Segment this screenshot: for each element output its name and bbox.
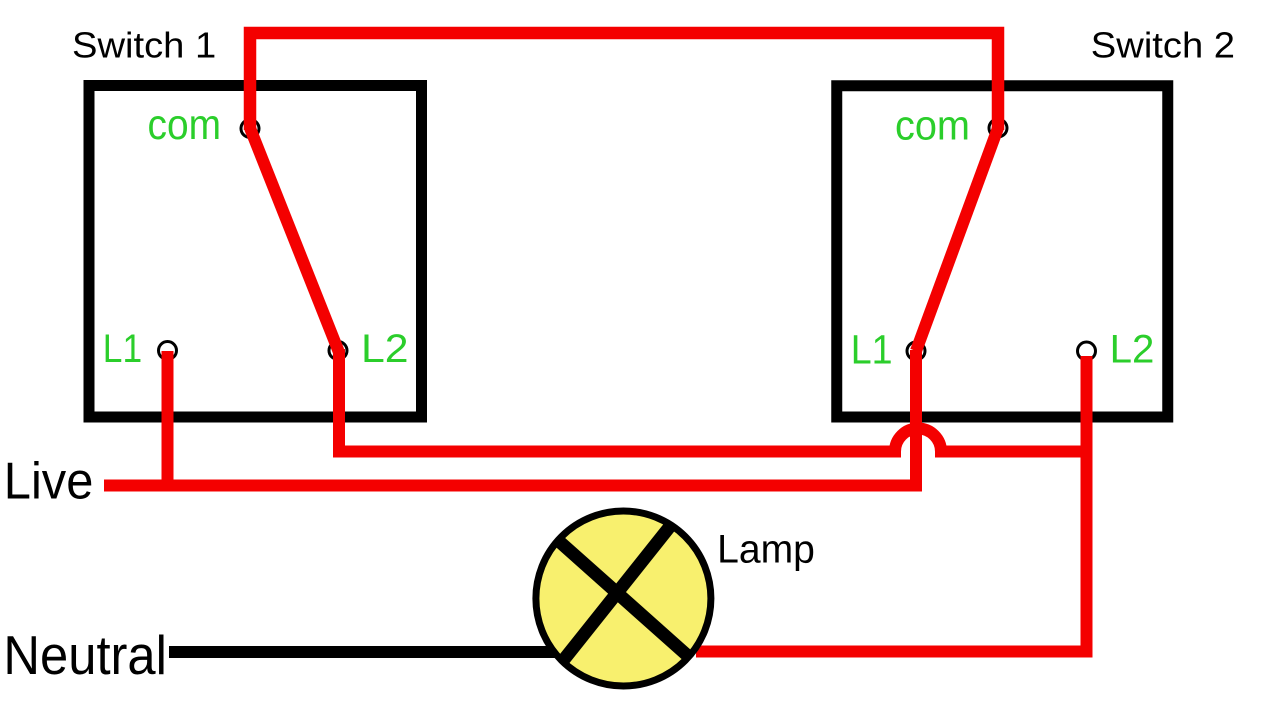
svg-text:Lamp: Lamp <box>717 527 815 571</box>
svg-text:Switch 2: Switch 2 <box>1091 26 1235 66</box>
svg-text:Neutral: Neutral <box>3 625 167 686</box>
svg-text:com: com <box>148 100 222 148</box>
svg-text:L2: L2 <box>361 326 409 370</box>
svg-text:L1: L1 <box>851 329 893 374</box>
svg-text:Switch 1: Switch 1 <box>72 26 216 66</box>
svg-text:Live: Live <box>4 451 94 510</box>
svg-text:com: com <box>895 102 970 149</box>
svg-text:L1: L1 <box>103 327 142 372</box>
svg-text:L2: L2 <box>1110 328 1155 372</box>
